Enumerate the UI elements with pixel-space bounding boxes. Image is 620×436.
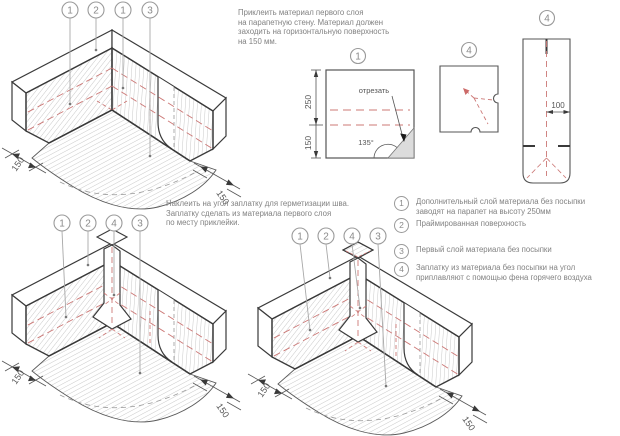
legend-text-line: Заплатку из материала без посыпки на уго… — [416, 263, 592, 273]
callout-circles: 1 2 1 3 — [62, 2, 158, 18]
legend-text-line: заводят на парапет на высоту 250мм — [416, 207, 585, 217]
legend-item-3: 3 Первый слой материала без посыпки — [394, 244, 552, 259]
legend-num-circle: 2 — [394, 218, 409, 233]
instruction-sheet: 1 2 1 3 150 150 1 2 4 3 150 150 — [0, 0, 620, 436]
callout-label: 3 — [375, 232, 381, 243]
callout-label: 1 — [67, 6, 73, 17]
legend-item-2: 2 Праймированная поверхность — [394, 218, 526, 233]
legend-text-line: Первый слой материала без посыпки — [416, 245, 552, 255]
patch-sheet — [440, 66, 498, 132]
callout-label: 1 — [297, 232, 303, 243]
dim-label-250: 250 — [303, 95, 313, 109]
instruction-step1: Приклеить материал первого слоя на парап… — [238, 8, 389, 46]
text-line: на 150 мм. — [238, 37, 389, 47]
callout-label: 4 — [349, 232, 355, 243]
callout-label: 3 — [137, 219, 143, 230]
pattern-label: 1 — [355, 51, 361, 62]
dim-label-150: 150 — [303, 136, 313, 150]
pattern-label: 4 — [544, 13, 550, 24]
dim-label-right: 150 — [214, 401, 231, 419]
callout-circles: 1 2 4 3 — [54, 215, 148, 231]
pattern-tall-strip: 4 100 — [514, 8, 584, 196]
callout-circles: 1 2 4 3 — [292, 228, 386, 244]
legend-item-4: 4 Заплатку из материала без посыпки на у… — [394, 262, 592, 283]
dim-label-right: 150 — [460, 414, 477, 432]
pattern-square-cut: 1 250 150 135° отрезать — [296, 46, 428, 172]
pattern-label: 4 — [466, 45, 472, 56]
text-line: заходить на горизонтальную поверхность — [238, 27, 389, 37]
text-line: Заплатку сделать из материала первого сл… — [166, 209, 349, 219]
text-line: Наклеить на угол заплатку для герметизац… — [166, 199, 349, 209]
legend-num-circle: 3 — [394, 244, 409, 259]
callout-label: 2 — [85, 219, 91, 230]
legend-num-circle: 4 — [394, 262, 409, 277]
legend-text-line: Праймированная поверхность — [416, 219, 526, 229]
cut-label: отрезать — [359, 86, 389, 95]
text-line: по месту приклейки. — [166, 218, 349, 228]
drawing-corner-step1: 1 2 1 3 150 150 — [0, 0, 242, 212]
callout-label: 2 — [93, 6, 99, 17]
legend-num-circle: 1 — [394, 196, 409, 211]
legend-text-line: Дополнительный слой материала без посыпк… — [416, 197, 585, 207]
dim-label-left: 150 — [9, 368, 26, 386]
callout-label: 2 — [323, 232, 329, 243]
dim-label-left: 150 — [9, 155, 26, 173]
callout-label: 3 — [147, 6, 153, 17]
drawing-corner-step2: 1 2 4 3 150 150 — [0, 213, 242, 435]
text-line: на парапетную стену. Материал должен — [238, 18, 389, 28]
callout-label: 4 — [111, 219, 117, 230]
callout-label: 1 — [120, 6, 126, 17]
text-line: Приклеить материал первого слоя — [238, 8, 389, 18]
pattern-notched-square: 4 — [432, 40, 508, 140]
instruction-step2: Наклеить на угол заплатку для герметизац… — [166, 199, 349, 228]
dim-label-left: 150 — [255, 381, 272, 399]
legend-item-1: 1 Дополнительный слой материала без посы… — [394, 196, 585, 217]
callout-label: 1 — [59, 219, 65, 230]
angle-label: 135° — [358, 138, 374, 147]
patch-cap — [343, 242, 373, 258]
legend-text-line: приплавляют с помощью фена горячего возд… — [416, 273, 592, 283]
dim-label-100: 100 — [551, 101, 565, 110]
